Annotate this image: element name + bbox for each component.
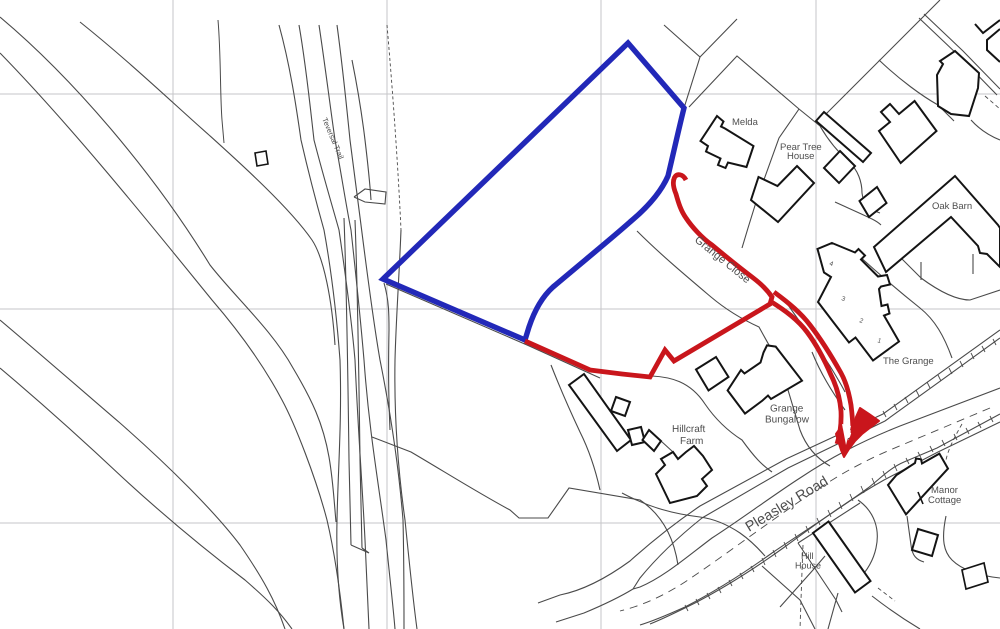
svg-text:Oak Barn: Oak Barn — [932, 201, 972, 212]
svg-text:Grange: Grange — [770, 404, 804, 415]
svg-text:Bungalow: Bungalow — [765, 415, 810, 426]
svg-text:Hill: Hill — [801, 551, 814, 561]
svg-text:Farm: Farm — [680, 436, 703, 447]
svg-text:Cottage: Cottage — [928, 495, 961, 506]
svg-text:House: House — [795, 561, 821, 571]
svg-text:House: House — [787, 151, 814, 162]
svg-text:The Grange: The Grange — [883, 356, 934, 367]
svg-text:Melda: Melda — [732, 117, 759, 128]
svg-text:Hillcraft: Hillcraft — [672, 424, 706, 435]
